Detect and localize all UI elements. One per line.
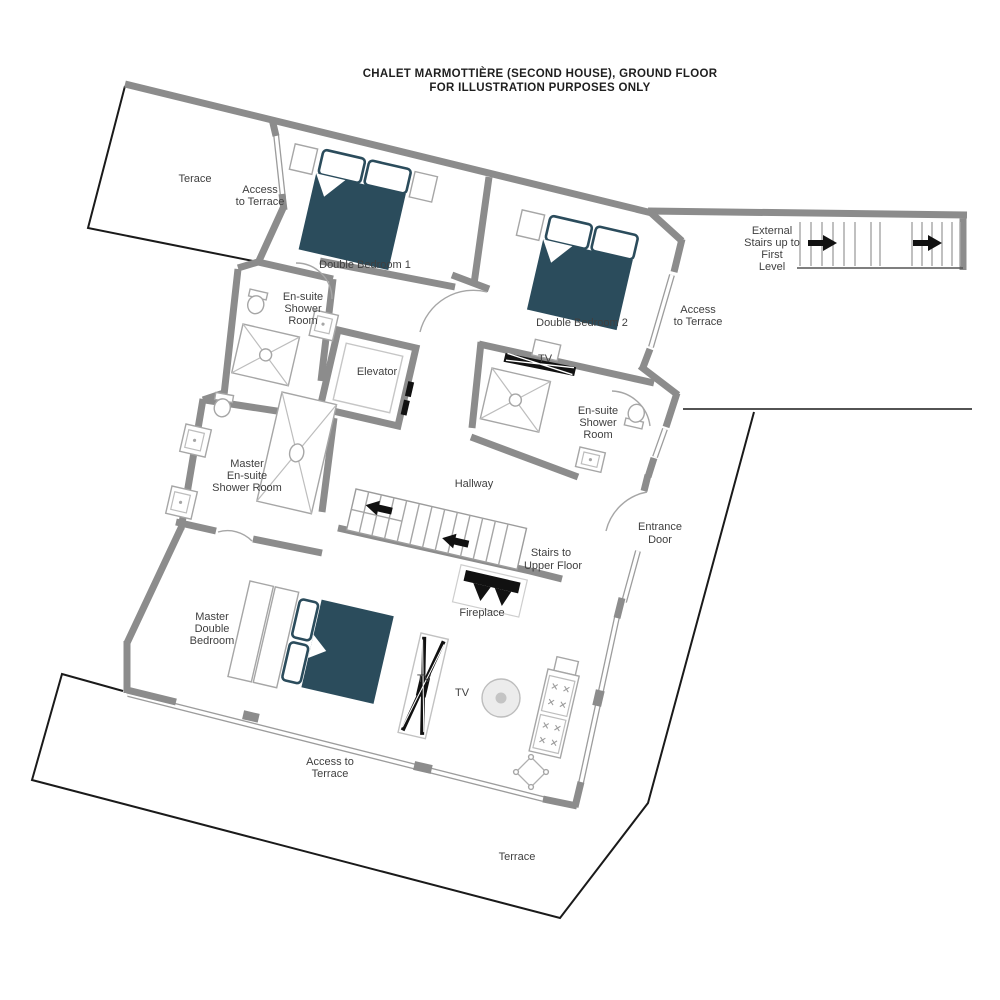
external-stairs	[797, 222, 963, 268]
label-tv-bedroom2: TV	[538, 353, 553, 365]
bed-double-2	[501, 209, 639, 330]
toilet-icon	[212, 392, 234, 418]
label-master-ensuite-3: Shower Room	[212, 482, 282, 494]
round-table	[482, 679, 520, 717]
label-entrance-door-1: Entrance	[638, 521, 682, 533]
label-ensuite2-2: Shower	[579, 417, 617, 429]
label-external-stairs-3: First	[761, 249, 782, 261]
label-tv-living-right: TV	[455, 687, 470, 699]
stool-diamond	[514, 755, 549, 790]
label-hallway: Hallway	[455, 478, 494, 490]
label-ensuite2-3: Room	[583, 429, 612, 441]
label-access-terrace-right-2: to Terrace	[674, 316, 723, 328]
label-access-terrace-right-1: Access	[680, 304, 716, 316]
label-entrance-door-2: Door	[648, 534, 672, 546]
label-elevator: Elevator	[357, 366, 398, 378]
label-master-ensuite-1: Master	[230, 458, 264, 470]
floor-plan-svg: CHALET MARMOTTIÈRE (SECOND HOUSE), GROUN…	[0, 0, 1000, 1000]
label-ensuite1-2: Shower	[284, 303, 322, 315]
bed-double-1	[272, 143, 437, 276]
terrace-bottom-outline	[32, 409, 972, 918]
kitchen-unit	[529, 655, 582, 758]
sink-icon	[576, 447, 606, 472]
toilet-icon	[245, 289, 268, 315]
label-terrace-top-left: Terace	[178, 173, 211, 185]
label-external-stairs-4: Level	[759, 261, 785, 273]
label-master-bedroom-2: Double	[195, 623, 230, 635]
bed-master	[228, 581, 394, 710]
label-ensuite2-1: En-suite	[578, 405, 618, 417]
toilet-icon	[624, 402, 647, 428]
label-stairs-upper-2: Upper Floor	[524, 560, 582, 572]
floor-plan-page: CHALET MARMOTTIÈRE (SECOND HOUSE), GROUN…	[0, 0, 1000, 1000]
label-tv-living-left: TV	[417, 673, 432, 685]
ensuite2-fixtures	[480, 368, 647, 472]
internal-stairs	[347, 489, 527, 569]
label-terrace-bottom: Terrace	[499, 851, 536, 863]
sink-icon	[180, 424, 212, 457]
label-access-terrace-bottom-2: Terrace	[312, 768, 349, 780]
page-title-line1: CHALET MARMOTTIÈRE (SECOND HOUSE), GROUN…	[363, 67, 718, 80]
label-access-terrace-top-2: to Terrace	[236, 196, 285, 208]
label-master-bedroom-3: Bedroom	[190, 635, 235, 647]
label-master-ensuite-2: En-suite	[227, 470, 267, 482]
label-double-bedroom-1: Double Bedroom 1	[319, 259, 411, 271]
label-stairs-upper-1: Stairs to	[531, 547, 571, 559]
page-title-line2: FOR ILLUSTRATION PURPOSES ONLY	[429, 82, 650, 94]
label-access-terrace-bottom-1: Access to	[306, 756, 354, 768]
label-ensuite1-1: En-suite	[283, 291, 323, 303]
sink-icon	[166, 486, 198, 519]
label-double-bedroom-2: Double Bedroom 2	[536, 317, 628, 329]
label-external-stairs-2: Stairs up to	[744, 237, 800, 249]
label-external-stairs-1: External	[752, 225, 792, 237]
label-ensuite1-3: Room	[288, 315, 317, 327]
tv-living-unit	[398, 633, 448, 739]
label-access-terrace-top-1: Access	[242, 184, 278, 196]
label-master-bedroom-1: Master	[195, 611, 229, 623]
label-fireplace: Fireplace	[459, 607, 504, 619]
